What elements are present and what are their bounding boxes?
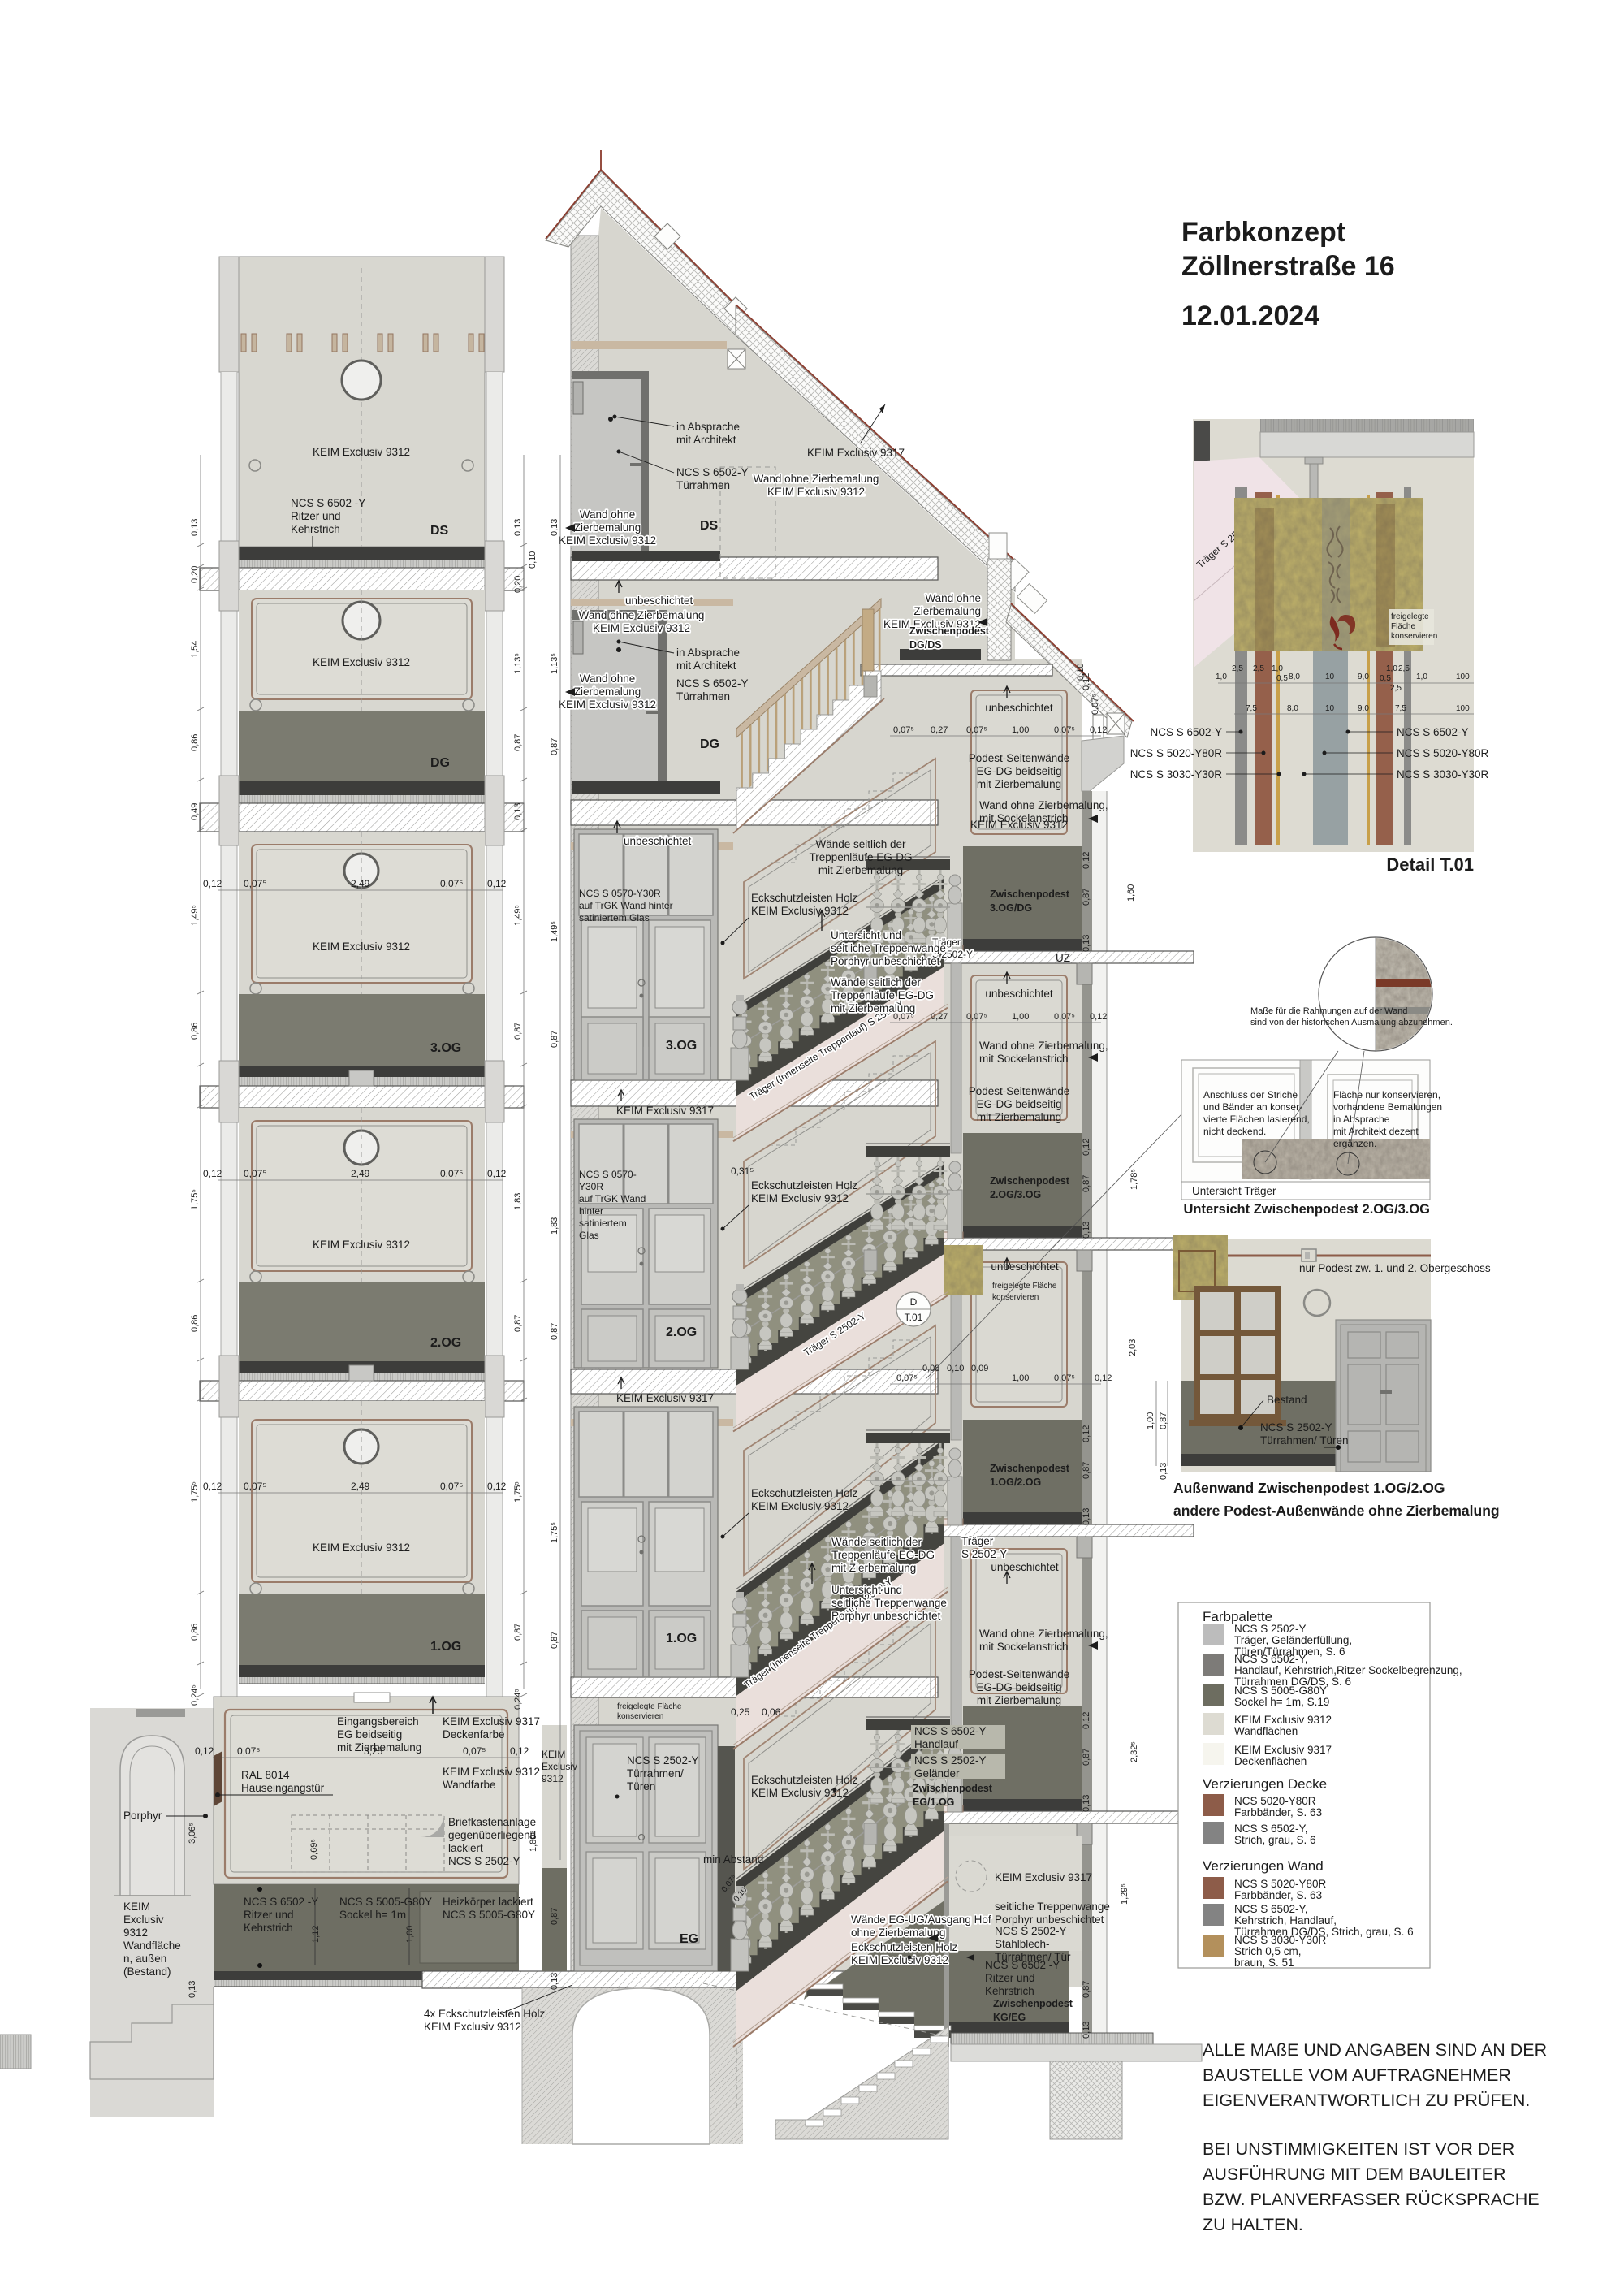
svg-text:Detail T.01: Detail T.01 bbox=[1386, 854, 1474, 875]
svg-text:NCS S 6502-Y,: NCS S 6502-Y, bbox=[1234, 1653, 1308, 1665]
svg-text:0,10: 0,10 bbox=[1076, 664, 1086, 681]
svg-text:1.OG: 1.OG bbox=[666, 1632, 697, 1645]
svg-text:mit Zierbemalung: mit Zierbemalung bbox=[977, 1694, 1061, 1706]
svg-text:KEIM Exclusiv 9317: KEIM Exclusiv 9317 bbox=[995, 1871, 1092, 1883]
svg-text:Glas: Glas bbox=[579, 1230, 599, 1241]
svg-text:Kehrstrich: Kehrstrich bbox=[985, 1985, 1034, 1997]
svg-text:Zwischenpodest: Zwischenpodest bbox=[990, 889, 1070, 900]
svg-text:0,87: 0,87 bbox=[550, 1632, 559, 1649]
svg-text:2,49: 2,49 bbox=[351, 1481, 370, 1492]
svg-text:3,06⁵: 3,06⁵ bbox=[188, 1823, 197, 1844]
svg-text:NCS S 6502 -Y: NCS S 6502 -Y bbox=[244, 1896, 318, 1908]
svg-text:Zwischenpodest: Zwischenpodest bbox=[990, 1463, 1070, 1474]
svg-text:NCS S 6502 -Y: NCS S 6502 -Y bbox=[291, 497, 365, 509]
svg-text:in Absprache: in Absprache bbox=[676, 647, 740, 659]
svg-text:Strich, grau, S. 6: Strich, grau, S. 6 bbox=[1234, 1834, 1316, 1846]
svg-text:4x Eckschutzleisten Holz: 4x Eckschutzleisten Holz bbox=[424, 2008, 546, 2020]
svg-text:Untersicht Träger: Untersicht Träger bbox=[1192, 1185, 1276, 1197]
svg-text:NCS S 6502-Y: NCS S 6502-Y bbox=[676, 677, 749, 690]
svg-text:UZ: UZ bbox=[1056, 952, 1070, 964]
svg-text:0,13: 0,13 bbox=[1082, 1508, 1091, 1525]
svg-text:NCS S 5020-Y80R: NCS S 5020-Y80R bbox=[1397, 747, 1489, 759]
svg-text:0,12: 0,12 bbox=[487, 1168, 507, 1179]
svg-text:mit Architekt dezent: mit Architekt dezent bbox=[1333, 1126, 1419, 1137]
svg-text:Porphyr unbeschichtet: Porphyr unbeschichtet bbox=[995, 1914, 1104, 1926]
svg-text:0,07⁵: 0,07⁵ bbox=[237, 1745, 260, 1757]
svg-text:0,24⁵: 0,24⁵ bbox=[190, 1684, 200, 1706]
svg-text:0,13: 0,13 bbox=[1082, 1795, 1091, 1812]
svg-text:freigelegte Fläche: freigelegte Fläche bbox=[992, 1282, 1057, 1291]
svg-text:1,49⁵: 1,49⁵ bbox=[190, 905, 200, 926]
svg-text:Handlauf, Kehrstrich,Ritzer So: Handlauf, Kehrstrich,Ritzer Sockelbegren… bbox=[1234, 1664, 1462, 1676]
svg-text:Träger, Geländerfüllung,: Träger, Geländerfüllung, bbox=[1234, 1634, 1352, 1646]
svg-text:1,75⁵: 1,75⁵ bbox=[190, 1481, 200, 1503]
svg-text:Eckschutzleisten Holz: Eckschutzleisten Holz bbox=[751, 1179, 858, 1191]
svg-text:Wand ohne Zierbemalung,: Wand ohne Zierbemalung, bbox=[979, 799, 1108, 811]
svg-text:1,00: 1,00 bbox=[1146, 1412, 1155, 1429]
svg-text:NCS S 6502-Y: NCS S 6502-Y bbox=[1150, 726, 1222, 738]
svg-text:KEIM Exclusiv 9312: KEIM Exclusiv 9312 bbox=[751, 905, 849, 917]
svg-text:Untersicht Zwischenpodest 2.OG: Untersicht Zwischenpodest 2.OG/3.OG bbox=[1184, 1202, 1430, 1217]
svg-text:Zöllnerstraße 16: Zöllnerstraße 16 bbox=[1181, 251, 1395, 282]
svg-text:Fläche: Fläche bbox=[1391, 622, 1415, 631]
svg-text:KEIM Exclusiv 9312: KEIM Exclusiv 9312 bbox=[424, 2021, 521, 2033]
svg-text:NCS S 6502 -Y: NCS S 6502 -Y bbox=[985, 1959, 1060, 1971]
svg-text:seitliche Treppenwange: seitliche Treppenwange bbox=[831, 1597, 947, 1609]
svg-text:0,87: 0,87 bbox=[513, 1624, 523, 1641]
svg-text:Porphyr: Porphyr bbox=[123, 1810, 162, 1822]
svg-text:EG-DG beidseitig: EG-DG beidseitig bbox=[976, 765, 1061, 777]
svg-text:NCS S 5005-G80Y: NCS S 5005-G80Y bbox=[1234, 1684, 1327, 1697]
svg-text:KEIM Exclusiv 9312: KEIM Exclusiv 9312 bbox=[751, 1192, 849, 1204]
svg-text:3,25: 3,25 bbox=[364, 1745, 383, 1757]
svg-text:KEIM: KEIM bbox=[123, 1901, 150, 1913]
svg-text:1,49⁵: 1,49⁵ bbox=[550, 921, 559, 942]
svg-text:0,12: 0,12 bbox=[1082, 1139, 1091, 1156]
svg-text:2,49: 2,49 bbox=[351, 878, 370, 889]
svg-text:0,20: 0,20 bbox=[190, 566, 200, 583]
svg-text:und Bänder an konser-: und Bänder an konser- bbox=[1203, 1101, 1302, 1113]
svg-text:0,12: 0,12 bbox=[487, 1481, 507, 1492]
svg-text:EG/1.OG: EG/1.OG bbox=[913, 1797, 954, 1808]
svg-text:1,60: 1,60 bbox=[1126, 884, 1136, 902]
svg-text:nicht deckend.: nicht deckend. bbox=[1203, 1126, 1266, 1137]
svg-text:0,86: 0,86 bbox=[190, 734, 200, 751]
svg-text:Treppenläufe EG-DG: Treppenläufe EG-DG bbox=[809, 851, 912, 863]
svg-text:0,07⁵: 0,07⁵ bbox=[893, 725, 914, 735]
svg-text:KEIM Exclusiv 9312: KEIM Exclusiv 9312 bbox=[559, 534, 656, 547]
svg-text:Wand ohne Zierbemalung: Wand ohne Zierbemalung bbox=[754, 473, 879, 485]
svg-text:unbeschichtet: unbeschichtet bbox=[625, 595, 693, 607]
svg-text:0,07⁵: 0,07⁵ bbox=[966, 725, 987, 735]
svg-text:vierte Flächen lasierend,: vierte Flächen lasierend, bbox=[1203, 1114, 1310, 1125]
svg-text:KG/EG: KG/EG bbox=[993, 2012, 1026, 2023]
svg-text:hinter: hinter bbox=[579, 1205, 603, 1217]
svg-text:Verzierungen Wand: Verzierungen Wand bbox=[1203, 1858, 1324, 1874]
svg-text:RAL 8014: RAL 8014 bbox=[241, 1769, 290, 1781]
svg-text:unbeschichtet: unbeschichtet bbox=[985, 988, 1053, 1000]
svg-text:NCS S 5020-Y80R: NCS S 5020-Y80R bbox=[1234, 1878, 1327, 1890]
svg-text:auf TrGK Wand: auf TrGK Wand bbox=[579, 1193, 646, 1204]
svg-text:mit Sockelanstrich: mit Sockelanstrich bbox=[979, 1053, 1069, 1065]
svg-text:konservieren: konservieren bbox=[1391, 632, 1437, 641]
svg-text:Eingangsbereich: Eingangsbereich bbox=[337, 1715, 419, 1728]
svg-text:2.OG: 2.OG bbox=[430, 1336, 461, 1350]
svg-text:2,5: 2,5 bbox=[1232, 664, 1243, 673]
svg-text:Podest-Seitenwände: Podest-Seitenwände bbox=[969, 1085, 1070, 1097]
svg-text:unbeschichtet: unbeschichtet bbox=[991, 1261, 1059, 1273]
svg-text:KEIM Exclusiv 9312: KEIM Exclusiv 9312 bbox=[313, 1239, 410, 1251]
svg-text:Strich 0,5 cm,: Strich 0,5 cm, bbox=[1234, 1945, 1302, 1957]
svg-text:seitliche Treppenwange: seitliche Treppenwange bbox=[831, 942, 946, 954]
svg-text:10: 10 bbox=[1325, 672, 1335, 681]
svg-text:Exclusiv: Exclusiv bbox=[542, 1761, 577, 1772]
svg-text:0,87: 0,87 bbox=[1082, 1175, 1091, 1192]
svg-text:EG beidseitig: EG beidseitig bbox=[337, 1728, 402, 1741]
svg-text:Kehrstrich: Kehrstrich bbox=[244, 1922, 293, 1934]
svg-text:NCS S 0570-: NCS S 0570- bbox=[579, 1169, 637, 1180]
svg-text:Wandfläche: Wandfläche bbox=[123, 1940, 181, 1952]
svg-text:0,10: 0,10 bbox=[947, 1364, 964, 1373]
svg-text:Farbbänder, S. 63: Farbbänder, S. 63 bbox=[1234, 1889, 1322, 1901]
svg-text:1,75⁵: 1,75⁵ bbox=[550, 1522, 559, 1543]
svg-text:Eckschutzleisten Holz: Eckschutzleisten Holz bbox=[751, 1487, 858, 1499]
svg-text:0,25: 0,25 bbox=[731, 1706, 750, 1718]
svg-text:0,07⁵: 0,07⁵ bbox=[1091, 694, 1100, 715]
svg-text:AUSFÜHRUNG MIT DEM BAULEITER: AUSFÜHRUNG MIT DEM BAULEITER bbox=[1203, 2164, 1506, 2184]
svg-text:Türrahmen: Türrahmen bbox=[676, 690, 730, 703]
svg-text:0,87: 0,87 bbox=[1082, 1462, 1091, 1479]
svg-text:9,0: 9,0 bbox=[1358, 704, 1369, 713]
svg-text:mit Architekt: mit Architekt bbox=[676, 434, 736, 446]
svg-text:Türrahmen/: Türrahmen/ bbox=[627, 1767, 684, 1780]
svg-text:KEIM Exclusiv 9312: KEIM Exclusiv 9312 bbox=[313, 446, 410, 458]
svg-text:1,13⁵: 1,13⁵ bbox=[550, 653, 559, 674]
svg-text:0,13: 0,13 bbox=[513, 803, 523, 820]
svg-text:NCS S 3030-Y30R: NCS S 3030-Y30R bbox=[1234, 1934, 1327, 1946]
svg-text:0,07⁵: 0,07⁵ bbox=[440, 1481, 463, 1492]
svg-text:2,5: 2,5 bbox=[1398, 664, 1410, 673]
svg-text:1,54: 1,54 bbox=[190, 641, 200, 658]
svg-text:1,0: 1,0 bbox=[1386, 664, 1397, 673]
svg-text:0,87: 0,87 bbox=[550, 1908, 559, 1925]
svg-text:NCS S 6502-Y: NCS S 6502-Y bbox=[1397, 726, 1469, 738]
svg-text:1,0: 1,0 bbox=[1416, 672, 1427, 681]
svg-text:1,83: 1,83 bbox=[550, 1217, 559, 1235]
svg-text:10: 10 bbox=[1325, 704, 1335, 713]
svg-text:satiniertem: satiniertem bbox=[579, 1217, 627, 1229]
svg-text:0,12: 0,12 bbox=[203, 1481, 222, 1492]
svg-text:Wand ohne Zierbemalung: Wand ohne Zierbemalung bbox=[579, 609, 705, 621]
svg-text:Farbkonzept: Farbkonzept bbox=[1181, 217, 1345, 248]
svg-text:Porphyr unbeschichtet: Porphyr unbeschichtet bbox=[831, 1610, 941, 1622]
svg-text:KEIM Exclusiv 9312: KEIM Exclusiv 9312 bbox=[593, 622, 690, 634]
svg-text:Zwischenpodest: Zwischenpodest bbox=[913, 1783, 993, 1794]
svg-text:mit Zierbemalung: mit Zierbemalung bbox=[818, 864, 903, 876]
svg-text:1,00: 1,00 bbox=[1012, 725, 1029, 735]
svg-text:0,07⁵: 0,07⁵ bbox=[244, 878, 266, 889]
svg-text:mit Sockelanstrich: mit Sockelanstrich bbox=[979, 1641, 1069, 1653]
svg-text:KEIM Exclusiv 9317: KEIM Exclusiv 9317 bbox=[1234, 1744, 1332, 1756]
svg-text:NCS S 6502-Y: NCS S 6502-Y bbox=[676, 466, 749, 478]
svg-text:Träger: Träger bbox=[961, 1535, 994, 1547]
svg-text:NCS S 6502-Y,: NCS S 6502-Y, bbox=[1234, 1903, 1308, 1915]
svg-text:Wände EG-UG/Ausgang Hof: Wände EG-UG/Ausgang Hof bbox=[851, 1914, 991, 1926]
svg-text:Türrahmen: Türrahmen bbox=[676, 479, 730, 491]
svg-text:0,07⁵: 0,07⁵ bbox=[1054, 725, 1075, 735]
svg-text:Handlauf: Handlauf bbox=[914, 1738, 958, 1750]
svg-text:S 2502-Y: S 2502-Y bbox=[961, 1548, 1007, 1560]
svg-text:T.01: T.01 bbox=[905, 1312, 923, 1323]
svg-text:0,86: 0,86 bbox=[190, 1315, 200, 1332]
svg-text:0,07⁵: 0,07⁵ bbox=[244, 1168, 266, 1179]
svg-text:0,12: 0,12 bbox=[1082, 1425, 1091, 1442]
svg-text:0,87: 0,87 bbox=[513, 734, 523, 751]
svg-text:7,5: 7,5 bbox=[1395, 704, 1406, 713]
svg-text:0,13: 0,13 bbox=[188, 1981, 197, 1998]
svg-text:Geländer: Geländer bbox=[914, 1767, 960, 1780]
svg-text:D: D bbox=[910, 1296, 918, 1308]
svg-text:Zwischenpodest: Zwischenpodest bbox=[990, 1175, 1070, 1187]
svg-text:0,86: 0,86 bbox=[190, 1624, 200, 1641]
svg-text:0,07⁵: 0,07⁵ bbox=[440, 878, 463, 889]
svg-text:0,12: 0,12 bbox=[1090, 725, 1107, 735]
svg-text:BEI UNSTIMMIGKEITEN IST VOR DE: BEI UNSTIMMIGKEITEN IST VOR DER bbox=[1203, 2139, 1514, 2159]
svg-text:0,13: 0,13 bbox=[1082, 935, 1091, 952]
svg-text:konservieren: konservieren bbox=[617, 1712, 663, 1721]
svg-text:lackiert: lackiert bbox=[448, 1842, 483, 1854]
svg-text:DS: DS bbox=[430, 524, 449, 538]
svg-text:Wandflächen: Wandflächen bbox=[1234, 1725, 1298, 1737]
svg-text:100: 100 bbox=[1456, 672, 1470, 681]
svg-text:0,07⁵: 0,07⁵ bbox=[1054, 1012, 1075, 1022]
svg-text:NCS S 2502-Y: NCS S 2502-Y bbox=[1234, 1623, 1307, 1635]
svg-text:8,0: 8,0 bbox=[1287, 704, 1298, 713]
svg-text:Ritzer und: Ritzer und bbox=[985, 1972, 1035, 1984]
svg-text:ALLE MAßE UND ANGABEN SIND AN: ALLE MAßE UND ANGABEN SIND AN DER bbox=[1203, 2040, 1547, 2060]
svg-text:KEIM Exclusiv 9312: KEIM Exclusiv 9312 bbox=[313, 941, 410, 953]
svg-text:NCS S 6502-Y: NCS S 6502-Y bbox=[914, 1725, 987, 1737]
svg-text:NCS S 3030-Y30R: NCS S 3030-Y30R bbox=[1130, 768, 1223, 781]
svg-text:Podest-Seitenwände: Podest-Seitenwände bbox=[969, 752, 1070, 764]
svg-text:Podest-Seitenwände: Podest-Seitenwände bbox=[969, 1668, 1070, 1680]
svg-text:EG: EG bbox=[680, 1932, 698, 1946]
svg-text:DG: DG bbox=[700, 737, 719, 751]
svg-text:NCS S 5005-G80Y: NCS S 5005-G80Y bbox=[339, 1896, 432, 1908]
svg-text:KEIM Exclusiv 9317: KEIM Exclusiv 9317 bbox=[616, 1392, 714, 1404]
svg-text:0,13: 0,13 bbox=[1082, 2022, 1091, 2039]
svg-text:ZU HALTEN.: ZU HALTEN. bbox=[1203, 2215, 1303, 2234]
svg-text:Maße für die Rahmungen auf der: Maße für die Rahmungen auf der Wand bbox=[1250, 1006, 1407, 1016]
svg-text:BAUSTELLE VOM AUFTRAGNEHMER: BAUSTELLE VOM AUFTRAGNEHMER bbox=[1203, 2065, 1511, 2085]
svg-text:Wand ohne: Wand ohne bbox=[925, 592, 981, 604]
svg-text:NCS S 6502-Y,: NCS S 6502-Y, bbox=[1234, 1823, 1308, 1835]
svg-text:Eckschutzleisten Holz: Eckschutzleisten Holz bbox=[751, 892, 858, 904]
svg-text:Zwischenpodest: Zwischenpodest bbox=[909, 625, 990, 637]
svg-text:0,49: 0,49 bbox=[190, 803, 200, 820]
svg-text:0,87: 0,87 bbox=[1082, 889, 1091, 906]
svg-text:0,07⁵: 0,07⁵ bbox=[463, 1745, 486, 1757]
svg-text:Exclusiv: Exclusiv bbox=[123, 1914, 164, 1926]
svg-text:Kehrstrich: Kehrstrich bbox=[291, 523, 340, 535]
svg-text:unbeschichtet: unbeschichtet bbox=[985, 702, 1053, 714]
svg-text:0,07⁵: 0,07⁵ bbox=[440, 1168, 463, 1179]
svg-text:in Absprache: in Absprache bbox=[1333, 1114, 1390, 1125]
svg-text:1,00: 1,00 bbox=[405, 1926, 415, 1943]
svg-text:0,87: 0,87 bbox=[550, 1323, 559, 1340]
svg-text:NCS S 3030-Y30R: NCS S 3030-Y30R bbox=[1397, 768, 1489, 781]
svg-text:1,75⁵: 1,75⁵ bbox=[513, 1481, 523, 1503]
svg-text:2,5: 2,5 bbox=[1390, 684, 1402, 693]
svg-text:Verzierungen Decke: Verzierungen Decke bbox=[1203, 1776, 1327, 1792]
svg-text:NCS 5020-Y80R: NCS 5020-Y80R bbox=[1234, 1795, 1316, 1807]
svg-text:Y30R: Y30R bbox=[579, 1181, 603, 1192]
svg-text:braun, S. 51: braun, S. 51 bbox=[1234, 1957, 1294, 1969]
svg-text:NCS S 5005-G80Y: NCS S 5005-G80Y bbox=[443, 1909, 535, 1921]
svg-text:0,87: 0,87 bbox=[1082, 1749, 1091, 1766]
svg-text:Deckenfarbe: Deckenfarbe bbox=[443, 1728, 505, 1741]
svg-text:mit Zierbemalung: mit Zierbemalung bbox=[831, 1562, 916, 1574]
svg-text:Untersicht und: Untersicht und bbox=[831, 929, 901, 941]
svg-text:0,12: 0,12 bbox=[487, 878, 507, 889]
svg-text:unbeschichtet: unbeschichtet bbox=[624, 835, 692, 847]
svg-text:EIGENVERANTWORTLICH ZU PRÜFEN.: EIGENVERANTWORTLICH ZU PRÜFEN. bbox=[1203, 2091, 1530, 2110]
svg-text:0,87: 0,87 bbox=[513, 1315, 523, 1332]
svg-text:in Absprache: in Absprache bbox=[676, 421, 740, 433]
svg-text:0,86: 0,86 bbox=[190, 1023, 200, 1040]
svg-text:KEIM Exclusiv 9317: KEIM Exclusiv 9317 bbox=[807, 447, 905, 459]
svg-text:2,49: 2,49 bbox=[351, 1168, 370, 1179]
svg-text:0,13: 0,13 bbox=[1159, 1463, 1168, 1480]
svg-text:NCS S 2502-Y: NCS S 2502-Y bbox=[627, 1754, 699, 1767]
svg-text:unbeschichtet: unbeschichtet bbox=[991, 1561, 1059, 1573]
svg-text:0,20: 0,20 bbox=[513, 576, 523, 593]
svg-text:0,12: 0,12 bbox=[1082, 852, 1091, 869]
svg-text:2.OG: 2.OG bbox=[666, 1325, 697, 1339]
svg-text:NCS S 2502-Y: NCS S 2502-Y bbox=[914, 1754, 987, 1767]
svg-text:Anschluss der Striche: Anschluss der Striche bbox=[1203, 1089, 1298, 1101]
svg-text:NCS S 5020-Y80R: NCS S 5020-Y80R bbox=[1130, 747, 1223, 759]
svg-text:KEIM Exclusiv 9312: KEIM Exclusiv 9312 bbox=[313, 656, 410, 668]
svg-text:1,0: 1,0 bbox=[1272, 664, 1283, 673]
svg-text:0,13: 0,13 bbox=[550, 1973, 559, 1990]
svg-text:9312: 9312 bbox=[123, 1927, 148, 1939]
svg-text:1,75⁵: 1,75⁵ bbox=[190, 1189, 200, 1210]
svg-text:1,83: 1,83 bbox=[513, 1193, 523, 1210]
svg-text:0,5: 0,5 bbox=[1380, 674, 1391, 683]
svg-text:0,13: 0,13 bbox=[550, 519, 559, 536]
svg-text:1,80⁵: 1,80⁵ bbox=[529, 1831, 538, 1852]
svg-text:KEIM Exclusiv 9312: KEIM Exclusiv 9312 bbox=[559, 698, 656, 711]
svg-text:satiniertem Glas: satiniertem Glas bbox=[579, 912, 650, 923]
svg-text:0,12: 0,12 bbox=[510, 1745, 529, 1757]
svg-text:KEIM Exclusiv 9317: KEIM Exclusiv 9317 bbox=[616, 1105, 714, 1117]
svg-text:Hauseingangstür: Hauseingangstür bbox=[241, 1782, 325, 1794]
svg-text:mit Zierbemalung: mit Zierbemalung bbox=[977, 778, 1061, 790]
svg-text:Zierbemalung: Zierbemalung bbox=[574, 685, 641, 698]
svg-text:Treppenläufe EG-DG: Treppenläufe EG-DG bbox=[831, 989, 934, 1001]
svg-text:mit Architekt: mit Architekt bbox=[676, 659, 736, 672]
svg-text:0,12: 0,12 bbox=[1090, 1012, 1107, 1022]
svg-text:KEIM Exclusiv 9312: KEIM Exclusiv 9312 bbox=[767, 486, 865, 498]
svg-text:DG: DG bbox=[430, 756, 450, 770]
svg-text:Porphyr unbeschichtet: Porphyr unbeschichtet bbox=[831, 955, 940, 967]
svg-text:0,87: 0,87 bbox=[1082, 1981, 1091, 1998]
svg-text:KEIM Exclusiv 9312: KEIM Exclusiv 9312 bbox=[443, 1766, 540, 1778]
svg-text:2,5: 2,5 bbox=[1253, 664, 1264, 673]
svg-text:Zierbemalung: Zierbemalung bbox=[914, 605, 981, 617]
svg-text:Zwischenpodest: Zwischenpodest bbox=[993, 1998, 1073, 2009]
svg-text:DG/DS: DG/DS bbox=[909, 639, 942, 651]
svg-text:100: 100 bbox=[1456, 704, 1470, 713]
svg-text:12.01.2024: 12.01.2024 bbox=[1181, 301, 1319, 331]
svg-text:Kehrstrich, Handlauf,: Kehrstrich, Handlauf, bbox=[1234, 1914, 1337, 1927]
svg-text:seitliche Treppenwange: seitliche Treppenwange bbox=[995, 1901, 1110, 1913]
svg-text:auf TrGK Wand hinter: auf TrGK Wand hinter bbox=[579, 900, 673, 911]
svg-text:1,0: 1,0 bbox=[1216, 672, 1227, 681]
svg-text:1,78⁵: 1,78⁵ bbox=[1129, 1169, 1139, 1190]
svg-text:Wände seitlich der: Wände seitlich der bbox=[815, 838, 906, 850]
svg-text:sind von der historischen Ausm: sind von der historischen Ausmalung abzu… bbox=[1250, 1018, 1453, 1027]
svg-text:7,5: 7,5 bbox=[1246, 704, 1257, 713]
svg-text:2,32⁵: 2,32⁵ bbox=[1129, 1741, 1139, 1762]
svg-text:3.OG: 3.OG bbox=[430, 1041, 461, 1055]
svg-text:Bestand: Bestand bbox=[1267, 1394, 1307, 1406]
svg-text:Zierbemalung: Zierbemalung bbox=[574, 521, 641, 534]
svg-text:Türen: Türen bbox=[627, 1780, 655, 1792]
svg-text:1,12: 1,12 bbox=[311, 1926, 321, 1943]
svg-text:Wände seitlich der: Wände seitlich der bbox=[831, 976, 922, 988]
svg-text:1,00: 1,00 bbox=[1012, 1012, 1029, 1022]
svg-text:Ritzer und: Ritzer und bbox=[291, 510, 341, 522]
svg-text:DS: DS bbox=[700, 519, 719, 533]
svg-text:KEIM Exclusiv 9312: KEIM Exclusiv 9312 bbox=[851, 1954, 948, 1966]
svg-text:gegenüberliegend: gegenüberliegend bbox=[448, 1829, 536, 1841]
svg-text:1.OG/2.OG: 1.OG/2.OG bbox=[990, 1477, 1041, 1488]
svg-text:0,07⁵: 0,07⁵ bbox=[966, 1012, 987, 1022]
svg-text:NCS S 2502-Y: NCS S 2502-Y bbox=[448, 1855, 520, 1867]
svg-text:1,00: 1,00 bbox=[1012, 1373, 1029, 1383]
svg-text:3.OG/DG: 3.OG/DG bbox=[990, 902, 1032, 914]
svg-text:NCS S 0570-Y30R: NCS S 0570-Y30R bbox=[579, 888, 661, 899]
svg-text:0,08: 0,08 bbox=[922, 1364, 939, 1373]
svg-text:ergänzen.: ergänzen. bbox=[1333, 1138, 1376, 1149]
svg-text:(Bestand): (Bestand) bbox=[123, 1965, 171, 1978]
svg-text:BZW. PLANVERFASSER RÜCKSPRACHE: BZW. PLANVERFASSER RÜCKSPRACHE bbox=[1203, 2190, 1540, 2209]
svg-text:0,07⁵: 0,07⁵ bbox=[1054, 1373, 1075, 1383]
svg-text:Türrahmen/ Türen: Türrahmen/ Türen bbox=[1260, 1434, 1349, 1447]
svg-text:Briefkastenanlage: Briefkastenanlage bbox=[448, 1816, 536, 1828]
svg-text:1,49⁵: 1,49⁵ bbox=[513, 905, 523, 926]
svg-text:0,07⁵: 0,07⁵ bbox=[896, 1373, 918, 1383]
svg-text:0,87: 0,87 bbox=[513, 1023, 523, 1040]
svg-text:KEIM Exclusiv 9312: KEIM Exclusiv 9312 bbox=[1234, 1714, 1332, 1726]
svg-text:2,03: 2,03 bbox=[1128, 1339, 1138, 1356]
svg-text:0,13: 0,13 bbox=[190, 519, 200, 536]
svg-text:EG-DG beidseitig: EG-DG beidseitig bbox=[976, 1098, 1061, 1110]
svg-text:NCS S 2502-Y: NCS S 2502-Y bbox=[1260, 1421, 1332, 1434]
svg-text:n, außen: n, außen bbox=[123, 1953, 166, 1965]
svg-text:EG-DG beidseitig: EG-DG beidseitig bbox=[976, 1681, 1061, 1693]
svg-text:9,0: 9,0 bbox=[1358, 672, 1369, 681]
svg-text:Ritzer und: Ritzer und bbox=[244, 1909, 294, 1921]
svg-text:KEIM Exclusiv 9312: KEIM Exclusiv 9312 bbox=[313, 1542, 410, 1554]
svg-text:nur Podest zw. 1. und 2. Oberg: nur Podest zw. 1. und 2. Obergeschoss bbox=[1299, 1262, 1491, 1274]
svg-text:Eckschutzleisten Holz: Eckschutzleisten Holz bbox=[751, 1774, 858, 1786]
svg-text:1,13⁵: 1,13⁵ bbox=[513, 653, 523, 674]
svg-text:Wände seitlich der: Wände seitlich der bbox=[831, 1536, 922, 1548]
svg-text:0,31⁵: 0,31⁵ bbox=[731, 1165, 754, 1177]
